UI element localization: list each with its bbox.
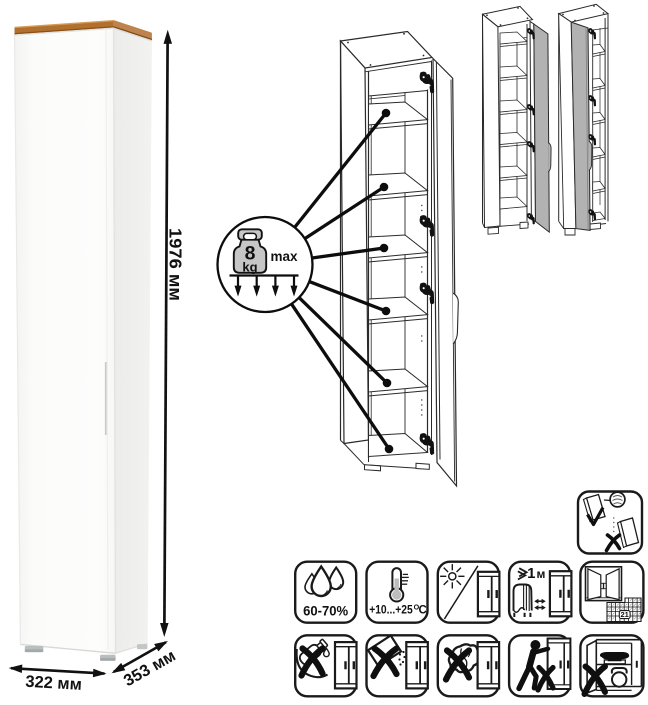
svg-text:21: 21 [621,610,629,619]
svg-text:м: м [537,567,546,581]
svg-text:kg: kg [242,260,257,275]
svg-text:322 мм: 322 мм [25,673,82,694]
svg-text:60-70%: 60-70% [303,603,348,618]
svg-text:+10...+25: +10...+25 [369,603,413,616]
svg-text:max: max [271,249,299,264]
svg-text:1: 1 [527,565,535,582]
svg-text:C: C [419,603,428,616]
svg-text:1976 мм: 1976 мм [166,228,186,301]
